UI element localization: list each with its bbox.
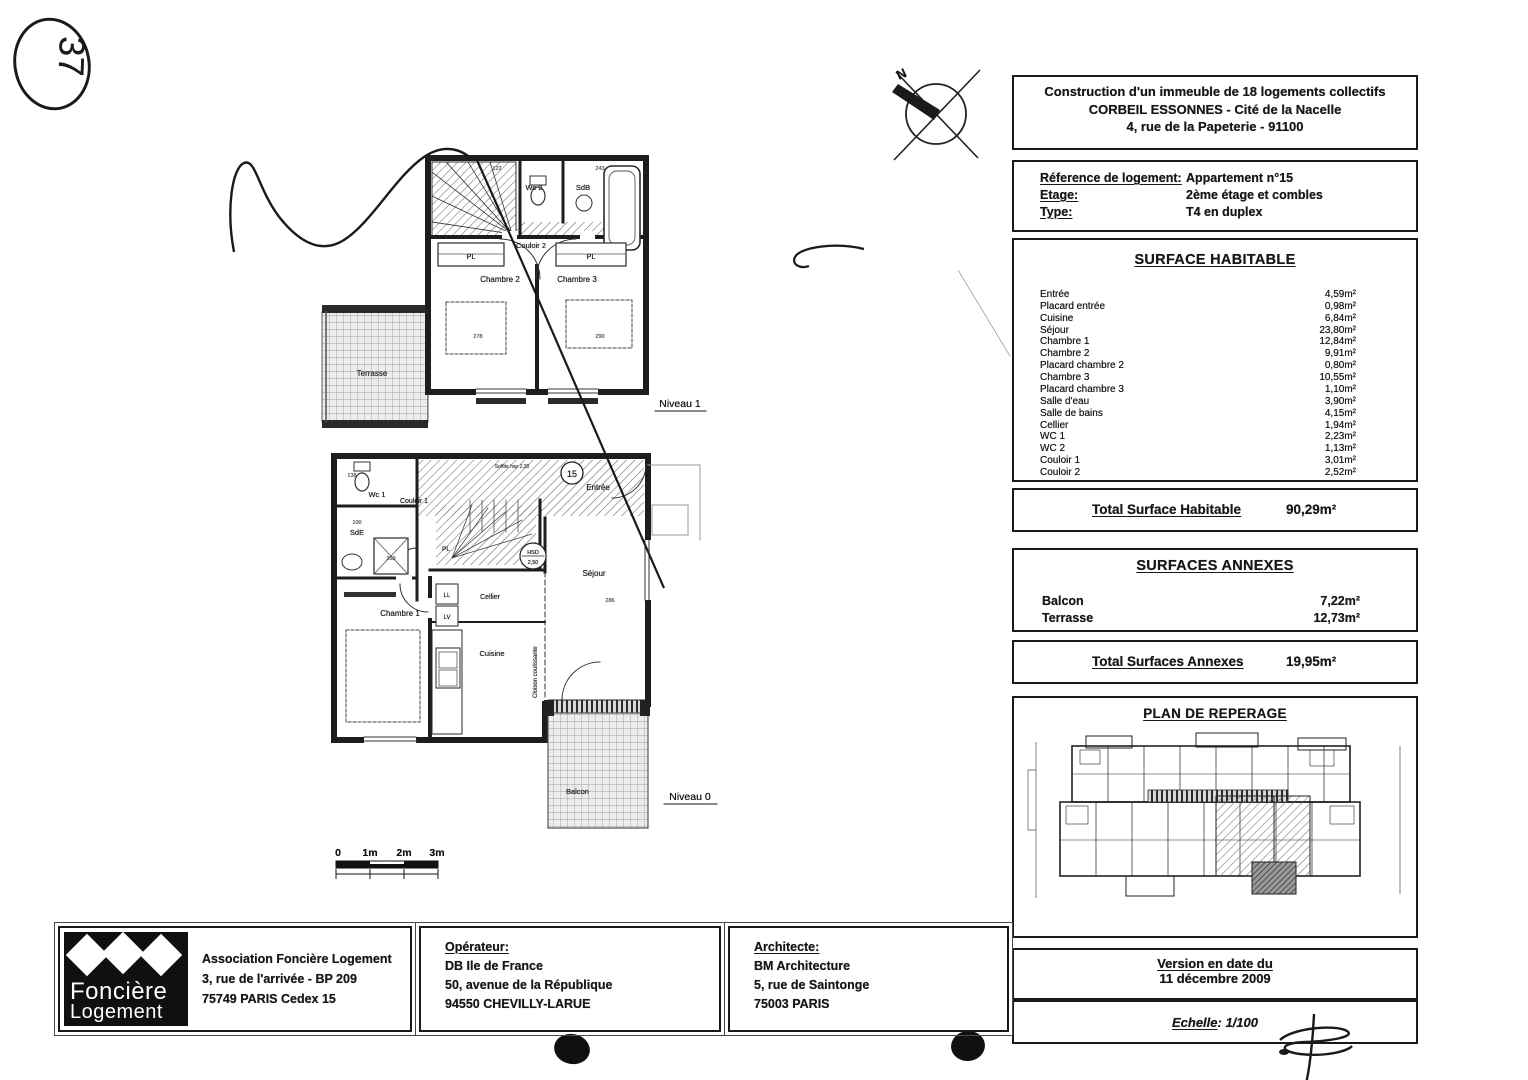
dim-label: 100 — [352, 520, 361, 526]
sink-icon-sde — [342, 554, 362, 570]
level-label-niveau0: Niveau 0 — [669, 791, 711, 803]
surface-row-label: Cellier — [1040, 420, 1068, 431]
surface-row-value: 1,10m² — [1325, 384, 1356, 395]
type-value: T4 en duplex — [1186, 205, 1262, 219]
room-label-couloir1: Couloir 1 — [400, 498, 428, 505]
room-label-chambre2: Chambre 2 — [480, 275, 520, 284]
surface-row-value: 4,59m² — [1325, 289, 1356, 300]
association-line3: 75749 PARIS Cedex 15 — [202, 992, 336, 1006]
room-label-sejour: Séjour — [582, 569, 605, 578]
soffit-note: Soffite hsp 2,20 — [495, 464, 530, 470]
room-label-terrasse: Terrasse — [357, 369, 388, 378]
north-label: N — [894, 65, 909, 83]
surface-row-value: 9,91m² — [1325, 348, 1356, 359]
hsd-value: 2,50 — [528, 560, 539, 566]
hsd-label: HSD — [527, 550, 539, 556]
architecte-line1: BM Architecture — [754, 959, 850, 973]
surface-row-value: 2,52m² — [1325, 467, 1356, 478]
plan-reperage-box: PLAN DE REPERAGE — [1012, 696, 1418, 938]
scale-tick-1m: 1m — [362, 847, 377, 859]
dim-label: 138 — [347, 473, 356, 479]
surface-row-label: Couloir 2 — [1040, 467, 1080, 478]
ink-stamp — [949, 1029, 987, 1063]
scale-tick-3m: 3m — [429, 847, 444, 859]
echelle-box: Echelle: 1/100 — [1012, 1000, 1418, 1044]
room-label-cuisine: Cuisine — [479, 649, 504, 658]
surface-row-value: 4,15m² — [1325, 408, 1356, 419]
architecte-title: Architecte: — [754, 940, 819, 954]
dim-label: 243 — [595, 166, 604, 172]
surface-habitable-title: SURFACE HABITABLE — [1014, 252, 1416, 268]
surface-row-value: 3,01m² — [1325, 455, 1356, 466]
surface-row-label: Entrée — [1040, 289, 1069, 300]
surface-row-value: 1,94m² — [1325, 420, 1356, 431]
version-box: Version en date du 11 décembre 2009 — [1012, 948, 1418, 1000]
surface-row-value: 0,98m² — [1325, 301, 1356, 312]
surfaces-annexes-title: SURFACES ANNEXES — [1014, 558, 1416, 574]
dim-label: 122 — [492, 166, 501, 172]
room-label-couloir2: Couloir 2 — [516, 241, 546, 250]
dim-label: 278 — [473, 334, 482, 340]
scale-tick-2m: 2m — [396, 847, 411, 859]
surface-habitable-box: SURFACE HABITABLE Entrée4,59m² Placard e… — [1012, 238, 1418, 482]
appliance-label-ll: LL — [444, 593, 451, 599]
surface-row-label: WC 1 — [1040, 431, 1065, 442]
unit-number: 15 — [567, 469, 577, 479]
echelle-label: Echelle — [1172, 1015, 1218, 1030]
surface-row-value: 23,80m² — [1319, 325, 1356, 336]
plan-reperage-title: PLAN DE REPERAGE — [1014, 706, 1416, 721]
surface-row-label: Placard entrée — [1040, 301, 1105, 312]
architecte-box: Architecte: BM Architecture 5, rue de Sa… — [728, 926, 1009, 1032]
room-label-sdb: SdB — [576, 183, 590, 192]
echelle-value: : 1/100 — [1218, 1015, 1258, 1030]
handwritten-number: 37 — [51, 36, 93, 77]
scanned-floorplan-document: { "page": { "handwritten_number": "37" }… — [0, 0, 1528, 1080]
scale-bar: 0 1m 2m 3m — [335, 847, 445, 879]
surfaces-annexes-box: SURFACES ANNEXES Balcon7,22m² Terrasse12… — [1012, 548, 1418, 632]
version-label: Version en date du — [1014, 956, 1416, 971]
room-label-chambre1: Chambre 1 — [380, 609, 420, 618]
surface-row-label: Salle d'eau — [1040, 396, 1089, 407]
reference-box: Réference de logement: Appartement n°15 … — [1012, 160, 1418, 232]
room-label-sde: SdE — [350, 528, 364, 537]
total-annexes-value: 19,95m² — [1286, 654, 1336, 669]
level-label-niveau1: Niveau 1 — [659, 398, 701, 410]
surface-row-label: Placard chambre 2 — [1040, 360, 1124, 371]
room-label-wc2: Wc 2 — [525, 183, 542, 192]
fonciere-logement-logo: Foncière Logement — [64, 932, 188, 1026]
project-title-line3: 4, rue de la Papeterie - 91100 — [1014, 118, 1416, 136]
surface-row-value: 6,84m² — [1325, 313, 1356, 324]
room-label-pl-right: PL — [586, 252, 595, 261]
etage-value: 2ème étage et combles — [1186, 188, 1323, 202]
surface-row-label: Couloir 1 — [1040, 455, 1080, 466]
etage-label: Etage: — [1040, 188, 1078, 202]
surface-row-value: 0,80m² — [1325, 360, 1356, 371]
annexe-row-label: Balcon — [1042, 594, 1084, 608]
surface-row-label: Chambre 1 — [1040, 336, 1089, 347]
surface-row-value: 12,84m² — [1319, 336, 1356, 347]
surface-row-value: 1,13m² — [1325, 443, 1356, 454]
operateur-line2: 50, avenue de la République — [445, 978, 612, 992]
floor-plan-niveau-0: Wc 1 Couloir 1 SdE Chambre 1 PL Entrée 1… — [334, 456, 717, 828]
balcony — [544, 700, 650, 828]
version-date: 11 décembre 2009 — [1014, 971, 1416, 986]
surface-row-value: 3,90m² — [1325, 396, 1356, 407]
bathtub-icon — [604, 166, 640, 250]
reference-value: Appartement n°15 — [1186, 171, 1293, 185]
total-surface-value: 90,29m² — [1286, 502, 1336, 517]
ink-stamp — [551, 1031, 592, 1068]
sink-icon-sdb — [576, 195, 592, 211]
room-label-cellier: Cellier — [480, 594, 501, 601]
project-title-line2: CORBEIL ESSONNES - Cité de la Nacelle — [1014, 101, 1416, 119]
window-chambre1 — [364, 733, 416, 747]
room-label-chambre3: Chambre 3 — [557, 275, 597, 284]
surface-row-label: Placard chambre 3 — [1040, 384, 1124, 395]
appliance-label-lv: LV — [444, 615, 451, 621]
total-annexes-box: Total Surfaces Annexes 19,95m² — [1012, 640, 1418, 684]
association-line1: Association Foncière Logement — [202, 952, 392, 966]
entry-landing — [648, 465, 700, 540]
pen-curve — [794, 246, 864, 267]
logo-text-line2: Logement — [70, 1001, 163, 1024]
surface-row-value: 2,23m² — [1325, 431, 1356, 442]
dim-label: 253 — [386, 556, 395, 562]
sliding-partition-label: Cloison coulissante — [533, 646, 539, 698]
kitchen-counter — [432, 630, 462, 734]
operateur-line1: DB Ile de France — [445, 959, 543, 973]
room-label-pl-left: PL — [466, 252, 475, 261]
total-surface-label: Total Surface Habitable — [1092, 502, 1241, 517]
reference-label: Réference de logement: — [1040, 171, 1182, 185]
operateur-box: Opérateur: DB Ile de France 50, avenue d… — [419, 926, 721, 1032]
scale-tick-0: 0 — [335, 847, 341, 859]
annexe-row-value: 12,73m² — [1313, 611, 1360, 625]
dim-label: 286 — [605, 598, 614, 604]
terrace-tiles — [322, 312, 428, 422]
north-compass-icon: N — [892, 65, 980, 160]
room-label-pl: PL — [442, 546, 450, 553]
total-surface-box: Total Surface Habitable 90,29m² — [1012, 488, 1418, 532]
foncier-logement-box: Foncière Logement Association Foncière L… — [58, 926, 412, 1032]
project-title-box: Construction d'un immeuble de 18 logemen… — [1012, 75, 1418, 150]
architecte-line2: 5, rue de Saintonge — [754, 978, 869, 992]
room-label-entree: Entrée — [586, 483, 610, 492]
total-annexes-label: Total Surfaces Annexes — [1092, 654, 1244, 669]
surface-row-value: 10,55m² — [1319, 372, 1356, 383]
surface-row-label: Chambre 3 — [1040, 372, 1089, 383]
association-line2: 3, rue de l'arrivée - BP 209 — [202, 972, 357, 986]
surface-row-label: Séjour — [1040, 325, 1069, 336]
annexe-row-value: 7,22m² — [1320, 594, 1360, 608]
operateur-line3: 94550 CHEVILLY-LARUE — [445, 997, 590, 1011]
operateur-title: Opérateur: — [445, 940, 509, 954]
floor-plan-niveau-1: Wc 2 SdB Couloir 2 PL PL Chambre 2 Chamb… — [322, 158, 706, 428]
surface-row-label: Cuisine — [1040, 313, 1073, 324]
surface-row-label: Salle de bains — [1040, 408, 1103, 419]
surface-row-label: Chambre 2 — [1040, 348, 1089, 359]
surface-row-label: WC 2 — [1040, 443, 1065, 454]
architecte-line3: 75003 PARIS — [754, 997, 830, 1011]
type-label: Type: — [1040, 205, 1072, 219]
project-title-line1: Construction d'un immeuble de 18 logemen… — [1014, 83, 1416, 101]
room-label-wc1: Wc 1 — [368, 490, 385, 499]
dim-label: 290 — [595, 334, 604, 340]
annexe-row-label: Terrasse — [1042, 611, 1093, 625]
room-label-balcon: Balcon — [566, 787, 589, 796]
